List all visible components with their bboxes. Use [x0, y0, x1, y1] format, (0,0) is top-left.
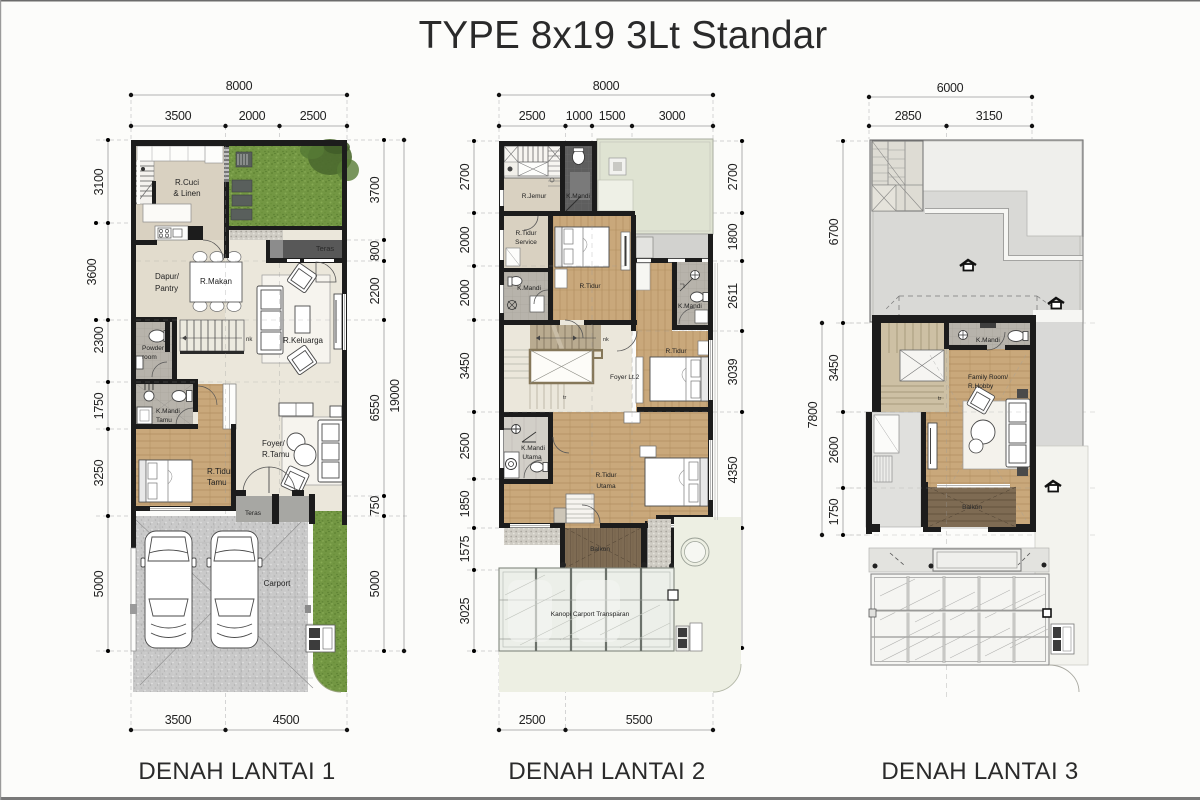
svg-text:R.Hobby: R.Hobby [968, 383, 994, 390]
svg-text:1850: 1850 [458, 490, 472, 517]
svg-text:3700: 3700 [368, 176, 382, 203]
svg-text:4350: 4350 [726, 456, 740, 483]
svg-text:3250: 3250 [92, 459, 106, 486]
svg-text:Balkon: Balkon [962, 504, 982, 511]
svg-text:R.Tidur: R.Tidur [665, 348, 687, 355]
svg-text:Foyer/: Foyer/ [262, 439, 285, 448]
svg-text:Balkon: Balkon [590, 546, 610, 553]
svg-text:Service: Service [515, 239, 537, 246]
svg-text:8000: 8000 [593, 79, 620, 93]
svg-text:2500: 2500 [458, 432, 472, 459]
svg-text:4500: 4500 [273, 713, 300, 727]
svg-text:R.Keluarga: R.Keluarga [283, 336, 324, 345]
svg-text:Tamu: Tamu [207, 478, 227, 487]
svg-text:1000: 1000 [566, 109, 593, 123]
svg-text:DENAH LANTAI 2: DENAH LANTAI 2 [508, 758, 705, 785]
svg-text:Powder: Powder [142, 345, 165, 352]
svg-text:6700: 6700 [827, 218, 841, 245]
svg-text:R.Tidur: R.Tidur [207, 467, 233, 476]
svg-text:3600: 3600 [85, 258, 99, 285]
svg-text:3450: 3450 [827, 354, 841, 381]
svg-text:Utama: Utama [596, 483, 616, 490]
svg-text:800: 800 [368, 241, 382, 261]
svg-text:2850: 2850 [895, 109, 922, 123]
svg-text:19000: 19000 [388, 379, 402, 413]
svg-text:1750: 1750 [92, 392, 106, 419]
svg-text:2000: 2000 [239, 109, 266, 123]
svg-text:1750: 1750 [827, 498, 841, 525]
svg-text:R.Tidur: R.Tidur [579, 283, 601, 290]
svg-text:Teras: Teras [316, 244, 335, 253]
svg-text:3000: 3000 [659, 109, 686, 123]
svg-text:2700: 2700 [726, 163, 740, 190]
svg-text:K.Mandi: K.Mandi [156, 408, 180, 415]
svg-text:R.Tidur: R.Tidur [515, 230, 537, 237]
svg-text:2500: 2500 [519, 109, 546, 123]
svg-text:Foyer Lt.2: Foyer Lt.2 [610, 374, 640, 381]
svg-text:Carport: Carport [264, 579, 291, 588]
svg-text:5000: 5000 [368, 570, 382, 597]
svg-text:K.Mandi: K.Mandi [517, 285, 541, 292]
svg-text:1500: 1500 [599, 109, 626, 123]
svg-text:Teras: Teras [245, 510, 262, 517]
svg-text:R.Cuci: R.Cuci [175, 178, 199, 187]
svg-text:K.Mandi: K.Mandi [566, 193, 590, 200]
svg-text:3100: 3100 [92, 168, 106, 195]
svg-text:R.Tidur: R.Tidur [595, 472, 617, 479]
svg-text:3500: 3500 [165, 713, 192, 727]
svg-text:room: room [142, 354, 157, 361]
svg-text:2611: 2611 [726, 283, 740, 309]
svg-text:tr: tr [563, 395, 567, 401]
svg-text:2500: 2500 [519, 713, 546, 727]
svg-text:6550: 6550 [368, 394, 382, 421]
svg-text:TYPE 8x19 3Lt Standar: TYPE 8x19 3Lt Standar [419, 14, 828, 57]
svg-text:2500: 2500 [300, 109, 327, 123]
svg-text:DENAH LANTAI 3: DENAH LANTAI 3 [881, 758, 1078, 785]
svg-text:2200: 2200 [368, 277, 382, 304]
svg-text:tr: tr [938, 396, 942, 402]
svg-text:750: 750 [368, 496, 382, 516]
svg-text:nk: nk [246, 337, 253, 343]
svg-text:K.Mandi: K.Mandi [521, 445, 545, 452]
svg-text:Tamu: Tamu [156, 417, 172, 424]
svg-text:Dapur/: Dapur/ [155, 272, 180, 281]
svg-text:2600: 2600 [827, 436, 841, 463]
svg-text:DENAH LANTAI 1: DENAH LANTAI 1 [138, 758, 335, 785]
svg-text:5000: 5000 [92, 570, 106, 597]
svg-text:2700: 2700 [458, 163, 472, 190]
svg-text:3025: 3025 [458, 597, 472, 624]
svg-text:3150: 3150 [976, 109, 1003, 123]
svg-text:3039: 3039 [726, 358, 740, 385]
svg-text:8000: 8000 [226, 79, 253, 93]
svg-text:& Linen: & Linen [173, 189, 200, 198]
svg-text:5500: 5500 [626, 713, 653, 727]
svg-text:1800: 1800 [726, 223, 740, 250]
svg-text:2000: 2000 [458, 226, 472, 253]
svg-text:Family Room/: Family Room/ [968, 374, 1008, 381]
svg-text:2000: 2000 [458, 279, 472, 306]
svg-text:2300: 2300 [92, 326, 106, 353]
svg-text:R.Jemur: R.Jemur [522, 193, 547, 200]
svg-text:Pantry: Pantry [155, 284, 178, 293]
svg-text:nk: nk [603, 337, 609, 343]
svg-text:R.Makan: R.Makan [200, 277, 232, 286]
svg-text:R.Tamu: R.Tamu [262, 450, 290, 459]
svg-text:1575: 1575 [458, 535, 472, 562]
svg-text:7800: 7800 [806, 401, 820, 428]
svg-text:K.Mandi: K.Mandi [976, 337, 1000, 344]
svg-text:3500: 3500 [165, 109, 192, 123]
svg-text:Kanopi Carport Transparan: Kanopi Carport Transparan [551, 611, 630, 618]
svg-text:6000: 6000 [937, 81, 964, 95]
svg-text:3450: 3450 [458, 352, 472, 379]
